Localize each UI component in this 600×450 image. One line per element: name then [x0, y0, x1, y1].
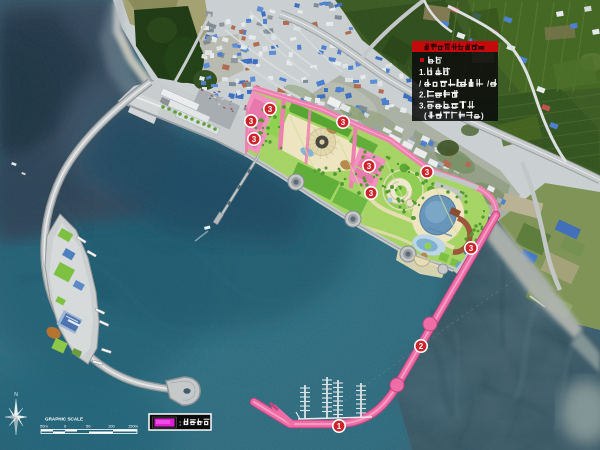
svg-text:100: 100	[108, 424, 115, 429]
svg-text:2.: 2.	[419, 91, 426, 100]
svg-text:3.: 3.	[419, 102, 426, 111]
svg-text:N: N	[14, 392, 18, 398]
svg-text:): )	[481, 112, 484, 121]
svg-text::: :	[179, 421, 181, 428]
svg-text:150m: 150m	[128, 424, 139, 429]
svg-text:50: 50	[86, 424, 91, 429]
svg-text:50m: 50m	[40, 424, 48, 429]
svg-text:1.: 1.	[419, 68, 426, 77]
svg-text:GRAPHIC SCALE: GRAPHIC SCALE	[45, 417, 83, 422]
svg-text:(: (	[424, 112, 427, 121]
